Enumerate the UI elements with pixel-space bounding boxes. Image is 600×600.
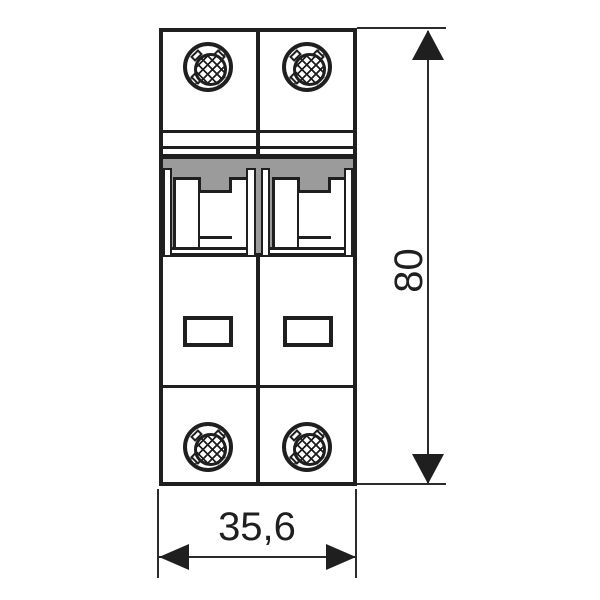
toggle-handle-edge (299, 236, 331, 239)
recess-rail (163, 168, 172, 257)
terminal-section-line-top (163, 130, 353, 133)
recess-rail (261, 168, 270, 257)
screw-crosshatch-icon (194, 433, 227, 466)
arrow-left-icon (159, 544, 189, 570)
recess-rail (344, 168, 353, 257)
arrow-down-icon (412, 454, 444, 484)
screw-crosshatch-icon (293, 53, 326, 86)
screw-terminal-bottom-left (183, 422, 233, 472)
bottom-section-line (163, 385, 353, 388)
toggle-side-bar (173, 177, 201, 250)
recess-rail (246, 168, 256, 257)
technical-drawing-canvas: 80 35,6 (0, 0, 600, 600)
arrow-right-icon (326, 544, 356, 570)
arrow-up-icon (412, 30, 444, 60)
toggle-handle-edge (200, 236, 232, 239)
screw-crosshatch-icon (293, 433, 326, 466)
pole-divider-line (256, 28, 260, 486)
screw-terminal-top-left (183, 42, 233, 92)
extension-line-top (357, 27, 446, 29)
dimension-height-label: 80 (382, 243, 437, 298)
toggle-handle-pole-1 (200, 190, 232, 250)
screw-terminal-bottom-right (282, 422, 332, 472)
front-plate-line (163, 146, 353, 149)
indicator-window-pole-2 (283, 316, 333, 347)
toggle-side-bar (272, 177, 300, 250)
dimension-width-label: 35,6 (197, 506, 317, 548)
screw-terminal-top-right (282, 42, 332, 92)
indicator-window-pole-1 (183, 316, 233, 347)
toggle-handle-pole-2 (299, 190, 331, 250)
screw-crosshatch-icon (194, 53, 227, 86)
